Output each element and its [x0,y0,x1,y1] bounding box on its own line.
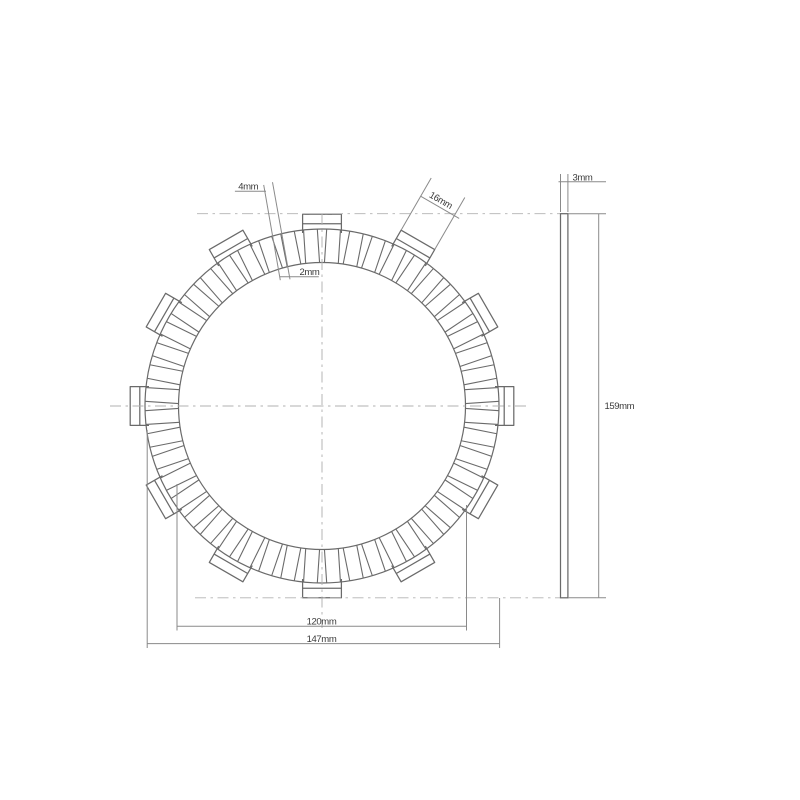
svg-text:120mm: 120mm [307,617,337,628]
svg-text:16mm: 16mm [427,190,454,212]
svg-text:3mm: 3mm [573,173,593,184]
svg-text:147mm: 147mm [307,634,337,645]
svg-text:4mm: 4mm [238,182,258,193]
svg-text:159mm: 159mm [605,401,635,412]
svg-text:2mm: 2mm [300,267,320,278]
